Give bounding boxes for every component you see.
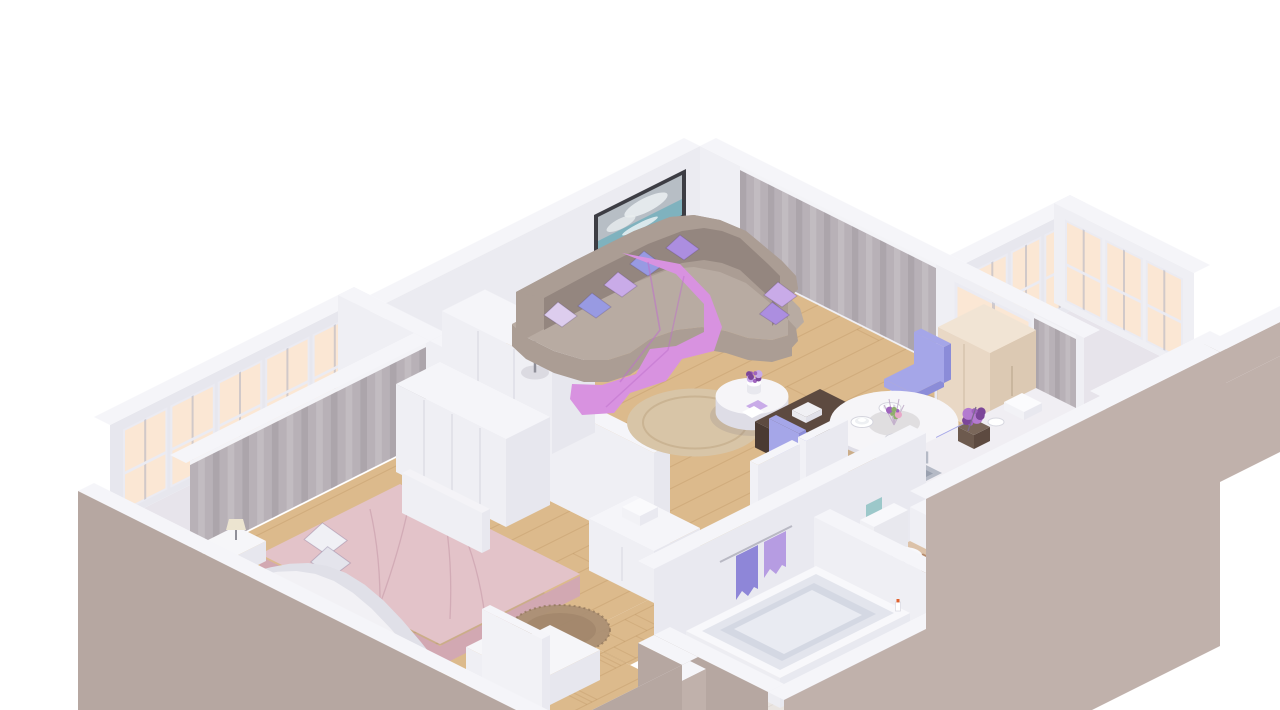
- dining-set-part: [944, 344, 951, 384]
- living-curtains-right-part: [866, 233, 872, 330]
- bed-side-rail-part: [482, 509, 490, 553]
- living-curtains-right-part: [796, 198, 802, 295]
- dining-set-part: [890, 412, 894, 416]
- coffee-table-part: [753, 371, 757, 375]
- bedroom-curtain-wall-part: [375, 369, 382, 466]
- coffee-table-part: [748, 374, 754, 380]
- living-curtains-right-part: [880, 240, 886, 337]
- bedroom-curtain-wall-part: [346, 384, 353, 481]
- apartment-3d-floorplan-render: [0, 0, 1280, 710]
- bedroom-curtain-wall-part: [390, 362, 397, 459]
- right-balcony-part: [1163, 270, 1165, 351]
- bedroom-curtain-wall-part: [213, 450, 220, 547]
- bedroom-curtain-wall-part: [242, 436, 249, 533]
- bedroom-curtain-wall-part: [316, 399, 323, 496]
- living-curtains-right-part: [894, 247, 900, 344]
- bedside-table-part: [226, 519, 246, 530]
- bedroom-curtain-wall-part: [272, 421, 279, 518]
- bedroom-curtain-wall-part: [301, 406, 308, 503]
- floorplan-scene: [0, 0, 1280, 710]
- living-curtains-right-part: [838, 219, 844, 316]
- bedroom-curtain-wall-part: [360, 377, 367, 474]
- shampoo-bottle-part: [897, 599, 900, 602]
- kitchen-counter-part: [988, 418, 1004, 426]
- right-balcony-part: [1083, 229, 1085, 310]
- bedroom-curtain-wall-part: [287, 413, 294, 510]
- shampoo-bottle-part: [896, 602, 901, 611]
- living-curtains-right-part: [824, 212, 830, 309]
- dining-set-part: [891, 407, 896, 412]
- living-curtains-right-part: [810, 205, 816, 302]
- living-curtains-right-part: [908, 254, 914, 351]
- bedroom-curtain-wall-part: [257, 428, 264, 525]
- living-curtains-right-part: [852, 226, 858, 323]
- right-balcony-part: [1123, 250, 1125, 331]
- dining-set-part: [858, 418, 866, 422]
- left-balcony-part: [144, 419, 146, 500]
- entrance-part: [542, 635, 550, 710]
- counter-plant: [958, 407, 990, 449]
- counter-plant-part: [976, 411, 985, 420]
- bedroom-curtain-wall-part: [331, 391, 338, 488]
